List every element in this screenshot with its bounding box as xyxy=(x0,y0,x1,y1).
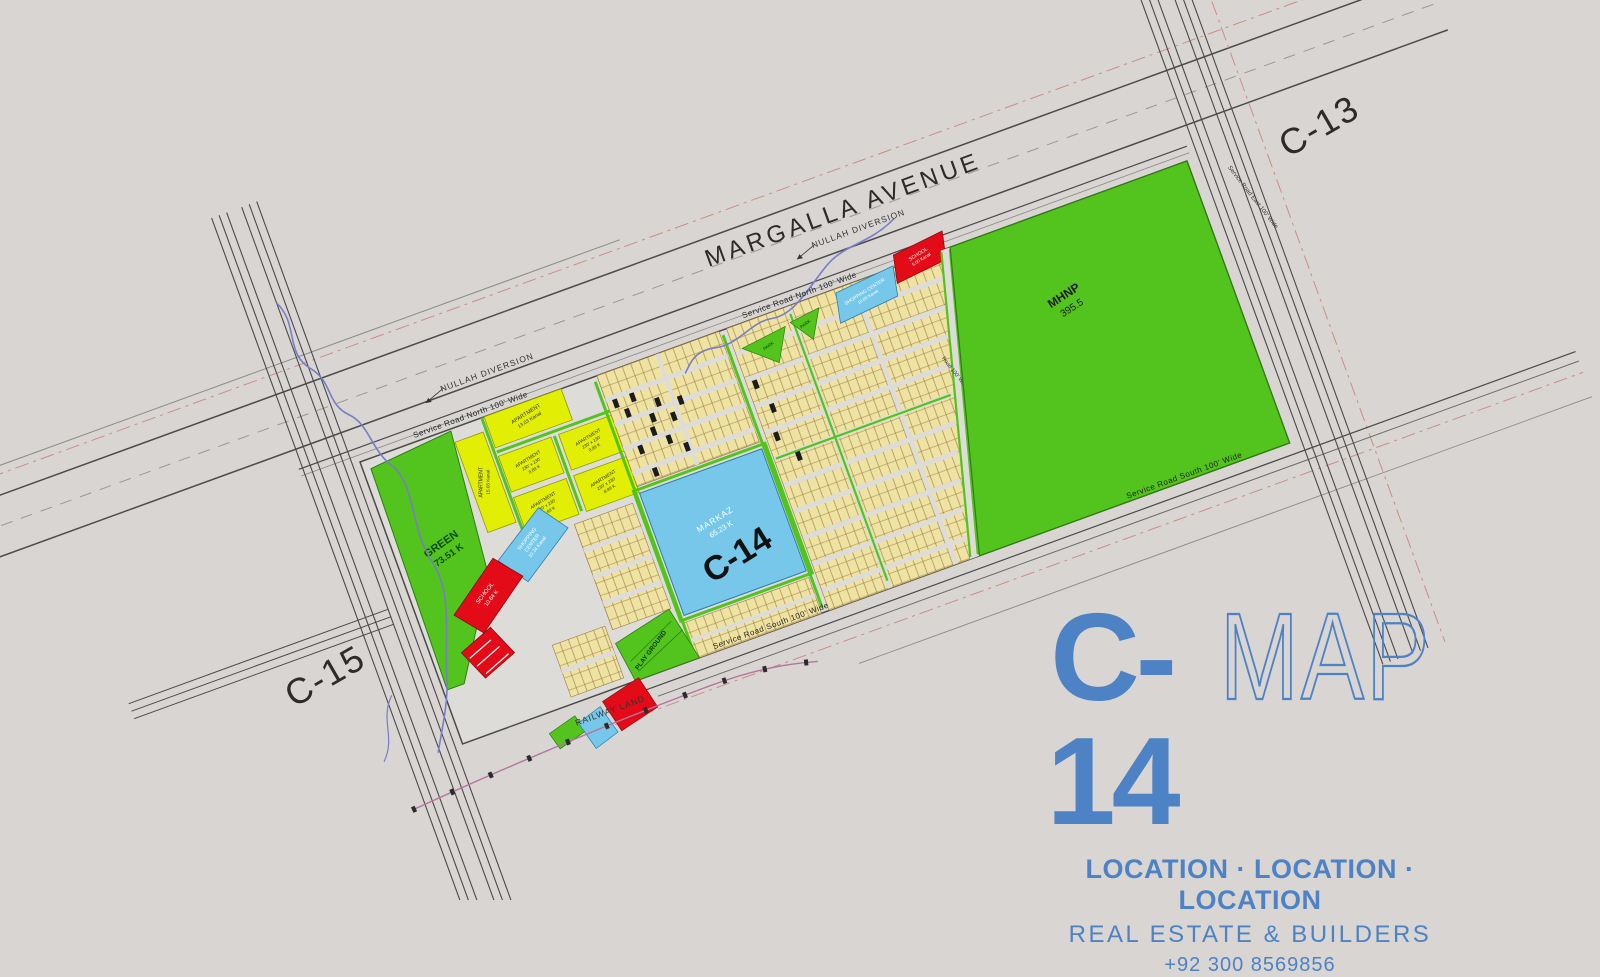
svg-text:Service Road East 100' Wide: Service Road East 100' Wide xyxy=(1226,165,1279,231)
brand-sector-text: C-14 xyxy=(1015,596,1208,844)
brand-phone: +92 300 8569856 xyxy=(1015,954,1485,977)
sector-c13-label: C-13 xyxy=(1272,86,1367,165)
brand-tagline: LOCATION · LOCATION · LOCATION xyxy=(1015,854,1485,916)
branding-block: C-14 MAP LOCATION · LOCATION · LOCATION … xyxy=(1015,596,1485,977)
brand-title-row: C-14 MAP xyxy=(1015,596,1485,844)
brand-map-text: MAP xyxy=(1220,595,1432,719)
brand-subtitle: REAL ESTATE & BUILDERS xyxy=(1015,921,1485,949)
svg-text:15.03 Kanal: 15.03 Kanal xyxy=(486,470,491,495)
sector-c15-label: C-15 xyxy=(278,636,373,715)
svg-text:NULLAH DIVERSION: NULLAH DIVERSION xyxy=(439,351,535,394)
svg-text:APARTMENT: APARTMENT xyxy=(479,467,485,497)
